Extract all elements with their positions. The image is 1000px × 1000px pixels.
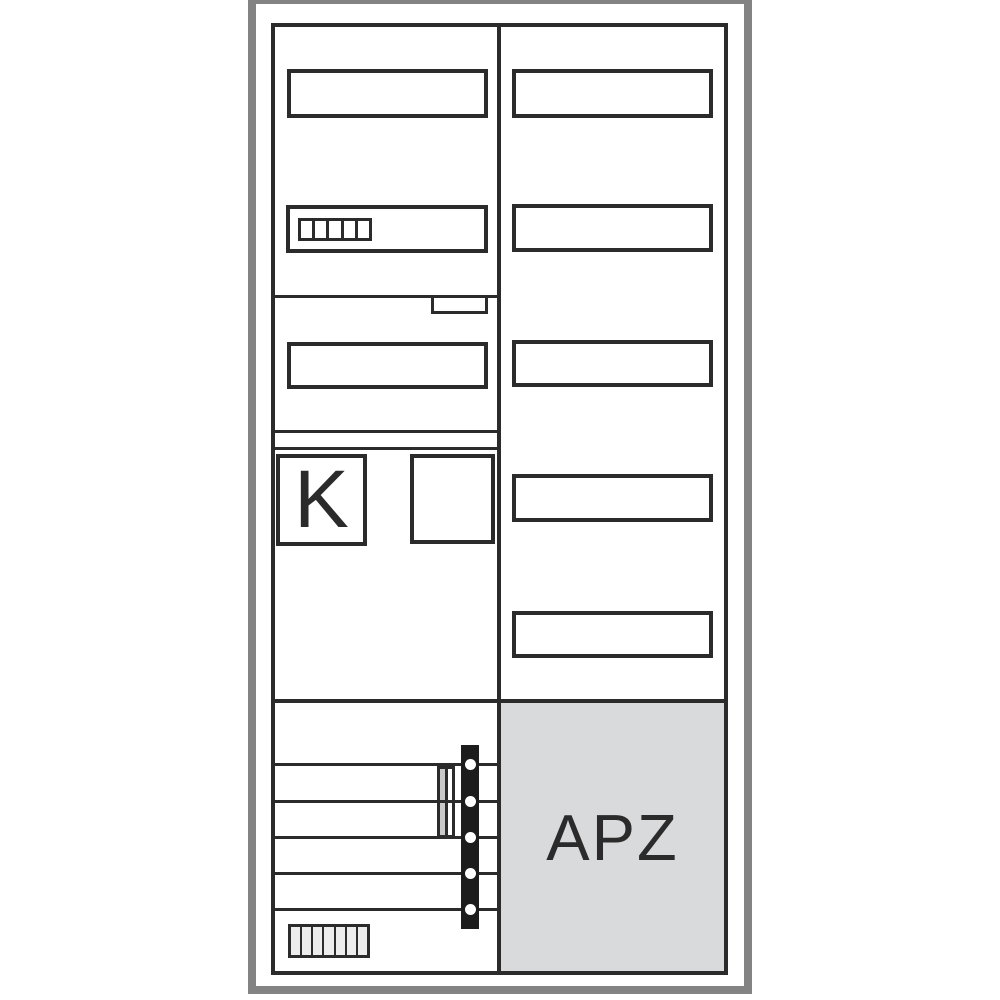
busbar-connection-dot bbox=[465, 904, 476, 915]
terminal-strip-icon bbox=[298, 218, 372, 241]
terminal-cell bbox=[347, 927, 356, 955]
busbar-connection-dot bbox=[465, 796, 476, 807]
terminal-cell bbox=[315, 221, 326, 238]
busbar bbox=[461, 745, 479, 929]
right-slot-1 bbox=[512, 69, 713, 118]
terminal-cell bbox=[324, 927, 333, 955]
k-field-label: K bbox=[294, 453, 349, 547]
terminal-cell bbox=[358, 221, 369, 238]
left-blank-field-1 bbox=[287, 69, 488, 118]
blank-module-box bbox=[410, 454, 495, 544]
busbar-connection-dot bbox=[465, 759, 476, 770]
right-slot-4 bbox=[512, 474, 713, 522]
left-blank-field-2 bbox=[287, 342, 488, 389]
right-slot-5 bbox=[512, 611, 713, 658]
busbar-connection-dot bbox=[465, 832, 476, 843]
terminal-cell bbox=[313, 927, 322, 955]
apz-field: APZ bbox=[501, 703, 724, 971]
busbar-connection-dot bbox=[465, 868, 476, 879]
terminal-cell bbox=[301, 221, 312, 238]
terminal-cell bbox=[291, 927, 300, 955]
right-slot-2 bbox=[512, 204, 713, 252]
small-module-box bbox=[431, 295, 488, 314]
terminal-cell bbox=[336, 927, 345, 955]
terminal-cell bbox=[329, 221, 340, 238]
k-field-box: K bbox=[276, 454, 367, 546]
terminal-cell bbox=[302, 927, 311, 955]
terminal-cell bbox=[358, 927, 367, 955]
left-section-line-2 bbox=[271, 430, 501, 433]
terminal-block-icon bbox=[288, 924, 370, 958]
left-section-line-3 bbox=[271, 447, 501, 450]
apz-field-label: APZ bbox=[546, 800, 678, 875]
terminal-cell bbox=[344, 221, 355, 238]
product-image: K APZ bbox=[0, 0, 1000, 1000]
right-slot-3 bbox=[512, 340, 713, 387]
